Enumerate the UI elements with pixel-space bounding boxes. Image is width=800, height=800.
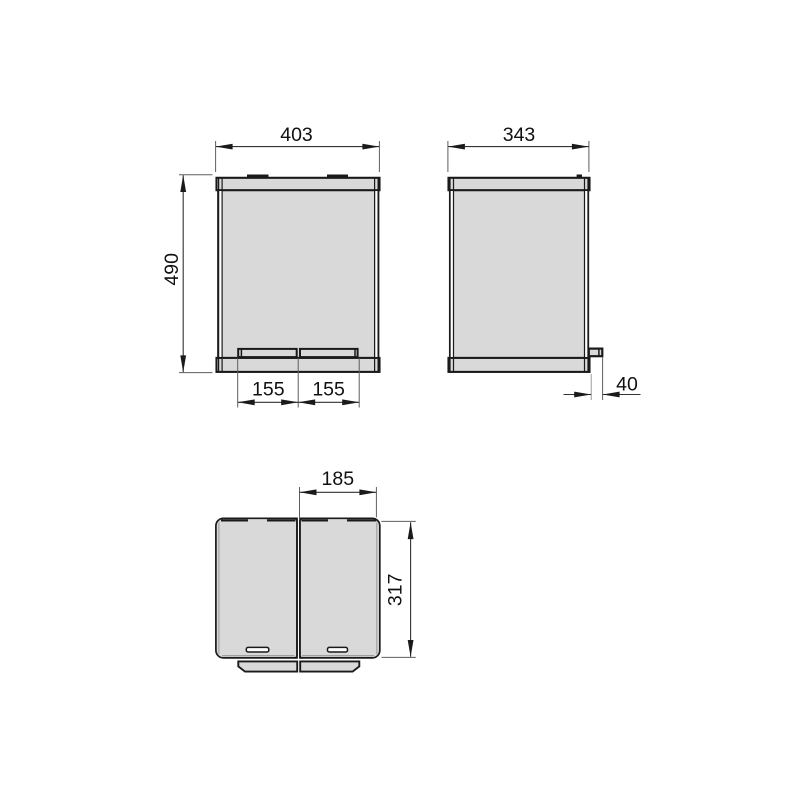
svg-text:317: 317 bbox=[385, 574, 407, 607]
svg-text:490: 490 bbox=[161, 253, 183, 286]
svg-text:185: 185 bbox=[322, 468, 355, 490]
svg-text:155: 155 bbox=[312, 378, 345, 400]
svg-text:40: 40 bbox=[616, 373, 638, 395]
svg-text:343: 343 bbox=[503, 124, 536, 146]
svg-text:155: 155 bbox=[252, 378, 285, 400]
svg-text:403: 403 bbox=[280, 124, 313, 146]
